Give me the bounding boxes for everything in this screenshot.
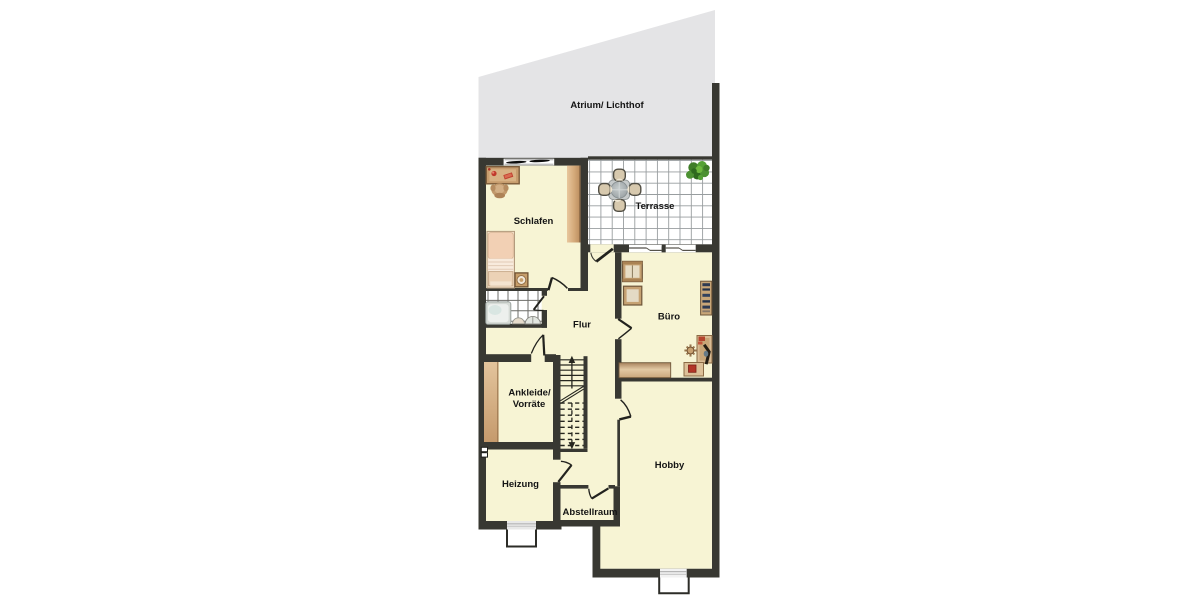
svg-text:Büro: Büro <box>658 312 680 323</box>
svg-text:Abstellraum: Abstellraum <box>563 507 618 518</box>
svg-text:Heizung: Heizung <box>502 479 539 490</box>
svg-text:Schlafen: Schlafen <box>514 216 554 227</box>
svg-text:Ankleide/: Ankleide/ <box>508 388 551 399</box>
svg-text:Hobby: Hobby <box>655 460 685 471</box>
svg-text:Vorräte: Vorräte <box>513 399 546 410</box>
svg-text:Atrium/ Lichthof: Atrium/ Lichthof <box>570 100 644 111</box>
svg-text:Terrasse: Terrasse <box>636 201 675 212</box>
svg-text:Flur: Flur <box>573 320 591 331</box>
